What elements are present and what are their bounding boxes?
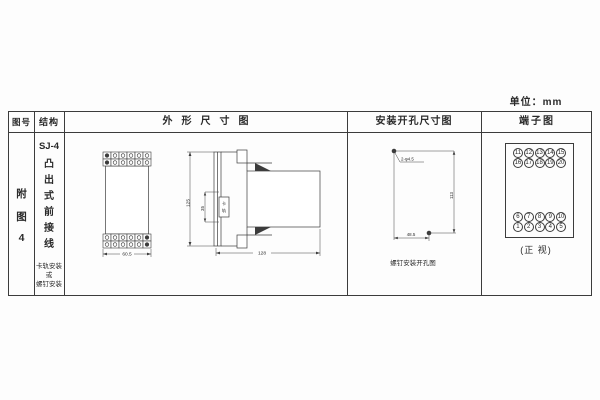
fixing-screw <box>105 161 109 165</box>
terminal-circle: 6 <box>513 212 523 222</box>
case-bottom-detail <box>221 227 272 248</box>
holes-callout: 2-φ4.5 <box>395 153 424 162</box>
terminal-circle: 17 <box>524 158 534 168</box>
mounting-drawing-caption: 螺钉安装开孔图 <box>346 257 480 267</box>
structure-type-char: 接 <box>44 219 54 234</box>
terminal-circle: 16 <box>513 158 523 168</box>
terminal-bottom-group: 6 7 8 9 10 1 2 3 4 5 <box>506 212 573 232</box>
terminal-top-group: 11 12 13 14 15 16 17 18 19 20 <box>506 148 573 168</box>
structure-type: 凸 出 式 前 接 线 <box>44 155 54 250</box>
terminal-circle: 1 <box>513 222 523 232</box>
column-divider <box>481 112 482 295</box>
dim-depth-128: 128 <box>216 229 320 257</box>
relay-case-side <box>247 171 320 227</box>
dim-label-depth: 128 <box>258 251 266 257</box>
figure-number-cell: 附 图 4 <box>9 132 34 297</box>
terminal-diagram-caption: (正 视) <box>480 243 592 256</box>
dim-label-vertical: 113 <box>449 191 454 199</box>
structure-type-char: 出 <box>44 171 54 186</box>
header-divider <box>9 132 591 133</box>
holes-label: 2-φ4.5 <box>401 157 414 162</box>
terminal-circle: 3 <box>535 222 545 232</box>
terminal-row: 11 12 13 14 15 <box>506 148 573 158</box>
dim-label-rail-offset: 35 <box>200 206 205 211</box>
terminal-circle: 5 <box>556 222 566 232</box>
figure-no-char: 附 <box>16 186 27 201</box>
terminal-circle: 11 <box>513 148 523 158</box>
terminal-circle: 2 <box>524 222 534 232</box>
structure-type-char: 式 <box>44 187 54 202</box>
figure-no-char: 图 <box>16 209 27 224</box>
mounting-note-line: 或 <box>46 272 53 280</box>
terminal-row: 1 2 3 4 5 <box>506 222 573 232</box>
mounting-hole-drawing: 2-φ4.5 113 48.5 <box>378 142 458 254</box>
header-mounting: 安装开孔尺寸图 <box>347 112 481 132</box>
terminal-circle: 18 <box>535 158 545 168</box>
terminal-circle: 9 <box>545 212 555 222</box>
terminal-circle: 14 <box>545 148 555 158</box>
structure-type-char: 线 <box>44 235 54 250</box>
front-view-drawing: 60.5 <box>98 150 158 260</box>
terminal-strip-bottom <box>103 234 151 248</box>
header-outline: 外形尺寸图 <box>64 112 347 132</box>
manual-page: 单位：mm 图号 结构 外形尺寸图 安装开孔尺寸图 端子图 附 图 4 SJ-4… <box>0 0 600 400</box>
terminal-circle: 4 <box>545 222 555 232</box>
header-structure: 结构 <box>34 112 64 132</box>
terminal-row: 16 17 18 19 20 <box>506 158 573 168</box>
layout-lines <box>429 233 456 241</box>
rail-label-char: 卡 <box>222 200 226 207</box>
terminal-circle: 19 <box>545 158 555 168</box>
dim-height-125: 125 <box>185 152 214 246</box>
terminal-circle: 15 <box>556 148 566 158</box>
din-rail-section: 卡 轨 <box>219 197 229 217</box>
dim-label-height: 125 <box>185 199 191 207</box>
terminal-strip-top <box>103 152 151 166</box>
fixing-screw <box>145 243 149 247</box>
terminal-row: 6 7 8 9 10 <box>506 212 573 222</box>
column-divider <box>347 112 348 295</box>
mounting-note-line: 卡轨安装 <box>36 263 62 271</box>
relay-body-front <box>106 166 149 234</box>
terminal-circle: 12 <box>524 148 534 158</box>
header-terminal: 端子图 <box>481 112 593 132</box>
terminal-circle: 8 <box>535 212 545 222</box>
mounting-hole-top <box>392 149 397 154</box>
dim-vertical-113: 113 <box>449 151 456 233</box>
terminal-circle: 7 <box>524 212 534 222</box>
model-label: SJ-4 <box>39 141 59 152</box>
figure-no-char: 4 <box>19 232 25 244</box>
case-top-detail <box>221 150 272 171</box>
side-view-drawing: 125 35 卡 轨 <box>183 145 331 263</box>
dim-label-width: 60.5 <box>122 252 132 258</box>
layout-lines <box>394 151 454 240</box>
structure-type-char: 前 <box>44 203 54 218</box>
structure-cell: SJ-4 凸 出 式 前 接 线 卡轨安装 或 螺钉安装 <box>34 132 64 297</box>
structure-type-char: 凸 <box>44 155 54 170</box>
mounting-note-line: 螺钉安装 <box>36 281 62 289</box>
terminal-circle: 20 <box>556 158 566 168</box>
terminal-diagram-box: 11 12 13 14 15 16 17 18 19 20 6 7 8 9 10 <box>505 143 574 238</box>
fixing-screw <box>105 154 109 158</box>
dim-label-horizontal: 48.5 <box>407 232 416 237</box>
fixing-screw <box>145 236 149 240</box>
header-figure-no: 图号 <box>9 112 34 132</box>
terminal-circle: 10 <box>556 212 566 222</box>
mounting-note: 卡轨安装 或 螺钉安装 <box>36 263 62 289</box>
dim-width-60-5: 60.5 <box>103 249 151 258</box>
terminal-circle: 13 <box>535 148 545 158</box>
unit-label: 单位：mm <box>480 93 592 108</box>
column-divider <box>64 112 65 295</box>
dim-horizontal-48-5: 48.5 <box>394 232 429 239</box>
